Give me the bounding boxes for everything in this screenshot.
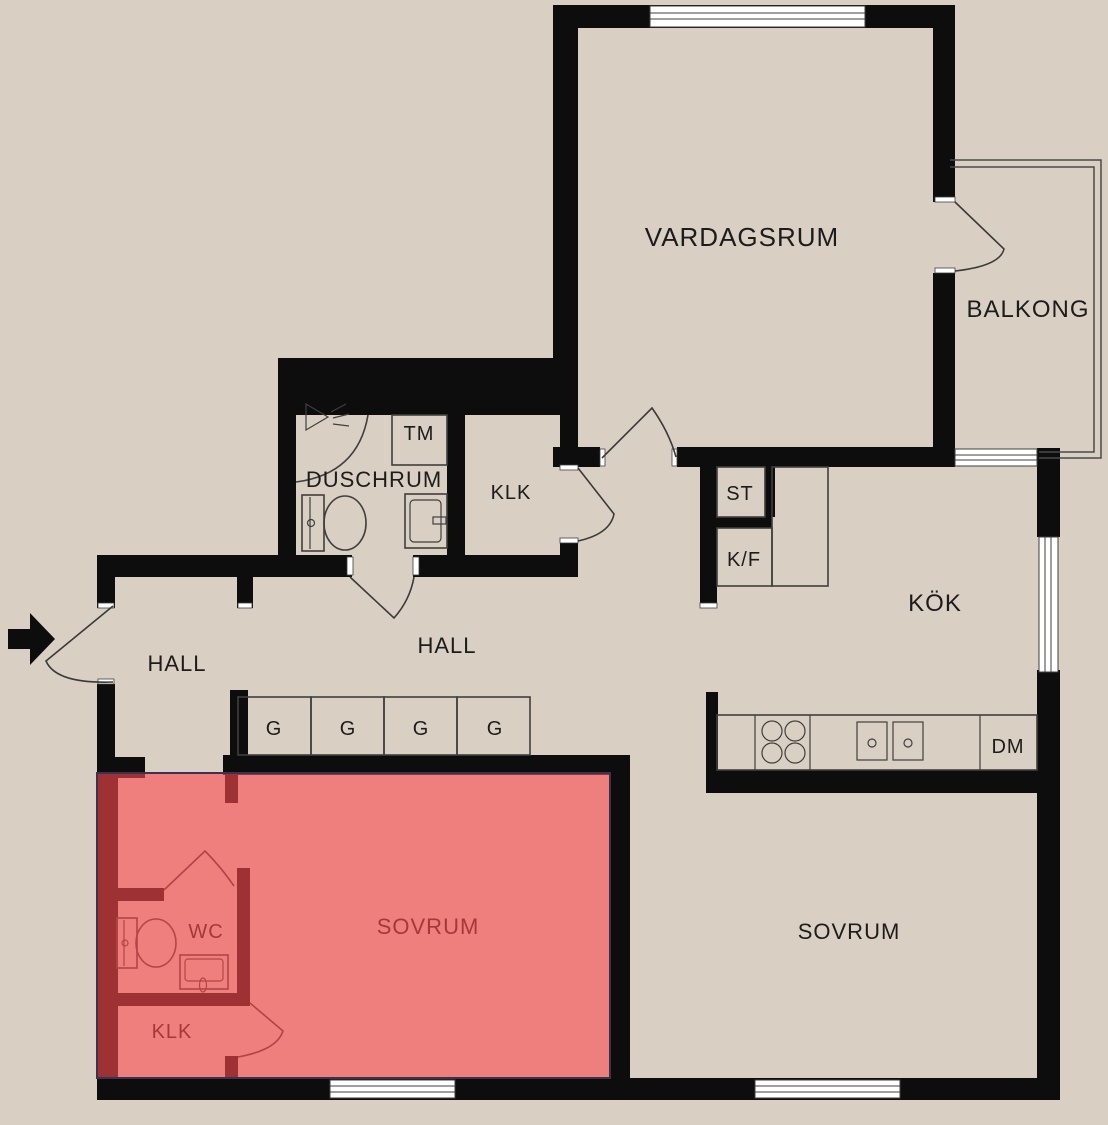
fixture-label-tm: TM — [404, 423, 435, 445]
wall-livingroom-right-lower — [933, 273, 955, 448]
wall-duschrum-bottom-left — [283, 555, 352, 577]
wall-duschrum-bottom-right — [413, 555, 560, 577]
wall-highlight-right — [610, 755, 630, 1078]
wall-livingroom-right-upper — [933, 5, 955, 202]
room-label-balkong: BALKONG — [966, 296, 1089, 323]
wall-livingroom-bottom-left — [553, 447, 600, 467]
wall-st-bottom — [706, 517, 772, 528]
fixture-label-g4: G — [487, 718, 504, 740]
window-kitchen — [1039, 537, 1058, 672]
window-top — [650, 6, 865, 27]
room-label-hall-corridor: HALL — [417, 633, 476, 658]
room-label-duschrum: DUSCHRUM — [306, 467, 442, 492]
highlight-overlay — [97, 773, 610, 1078]
room-label-klk-hall: KLK — [491, 482, 532, 504]
wall-kitchen-bottom — [706, 770, 1037, 793]
fixture-label-st: ST — [726, 483, 754, 505]
floor-plan-page: VARDAGSRUM BALKONG DUSCHRUM TM KLK ST K/… — [0, 0, 1108, 1125]
wall-wardrobe-stub — [230, 690, 248, 757]
room-label-kok: KÖK — [908, 590, 962, 617]
room-label-hall-entry: HALL — [147, 651, 206, 676]
wall-left-outer-upper — [97, 555, 115, 608]
wall-livingroom-left — [553, 5, 578, 390]
room-label-vardagsrum: VARDAGSRUM — [645, 222, 839, 252]
wall-right-outer-lower — [1037, 793, 1060, 1100]
wall-duschrum-left — [278, 358, 296, 577]
fixture-label-dm: DM — [991, 736, 1024, 758]
wall-klk-right-lower — [560, 543, 578, 577]
wall-duschrum-klk-divider — [447, 385, 465, 577]
wall-livingroom-bottom-right — [677, 447, 955, 467]
wall-kitchen-right-lower — [1037, 670, 1060, 793]
floor-plan-svg: VARDAGSRUM BALKONG DUSCHRUM TM KLK ST K/… — [0, 0, 1108, 1125]
fixture-label-kf: K/F — [727, 549, 761, 571]
wall-above-duschrum — [278, 358, 578, 415]
wall-hall-top — [97, 555, 283, 577]
wall-kitchen-right-upper — [1037, 448, 1060, 537]
window-balcony — [955, 449, 1037, 466]
window-bedroom-right — [755, 1080, 900, 1098]
wall-st-right — [765, 467, 775, 517]
wall-bottom — [97, 1078, 1060, 1100]
fixture-label-g1: G — [266, 718, 283, 740]
room-label-sovrum-right: SOVRUM — [798, 919, 901, 944]
window-bedroom-left — [330, 1080, 455, 1098]
fixture-label-g2: G — [340, 718, 357, 740]
fixture-label-g3: G — [413, 718, 430, 740]
wall-kitchen-left — [700, 467, 717, 608]
